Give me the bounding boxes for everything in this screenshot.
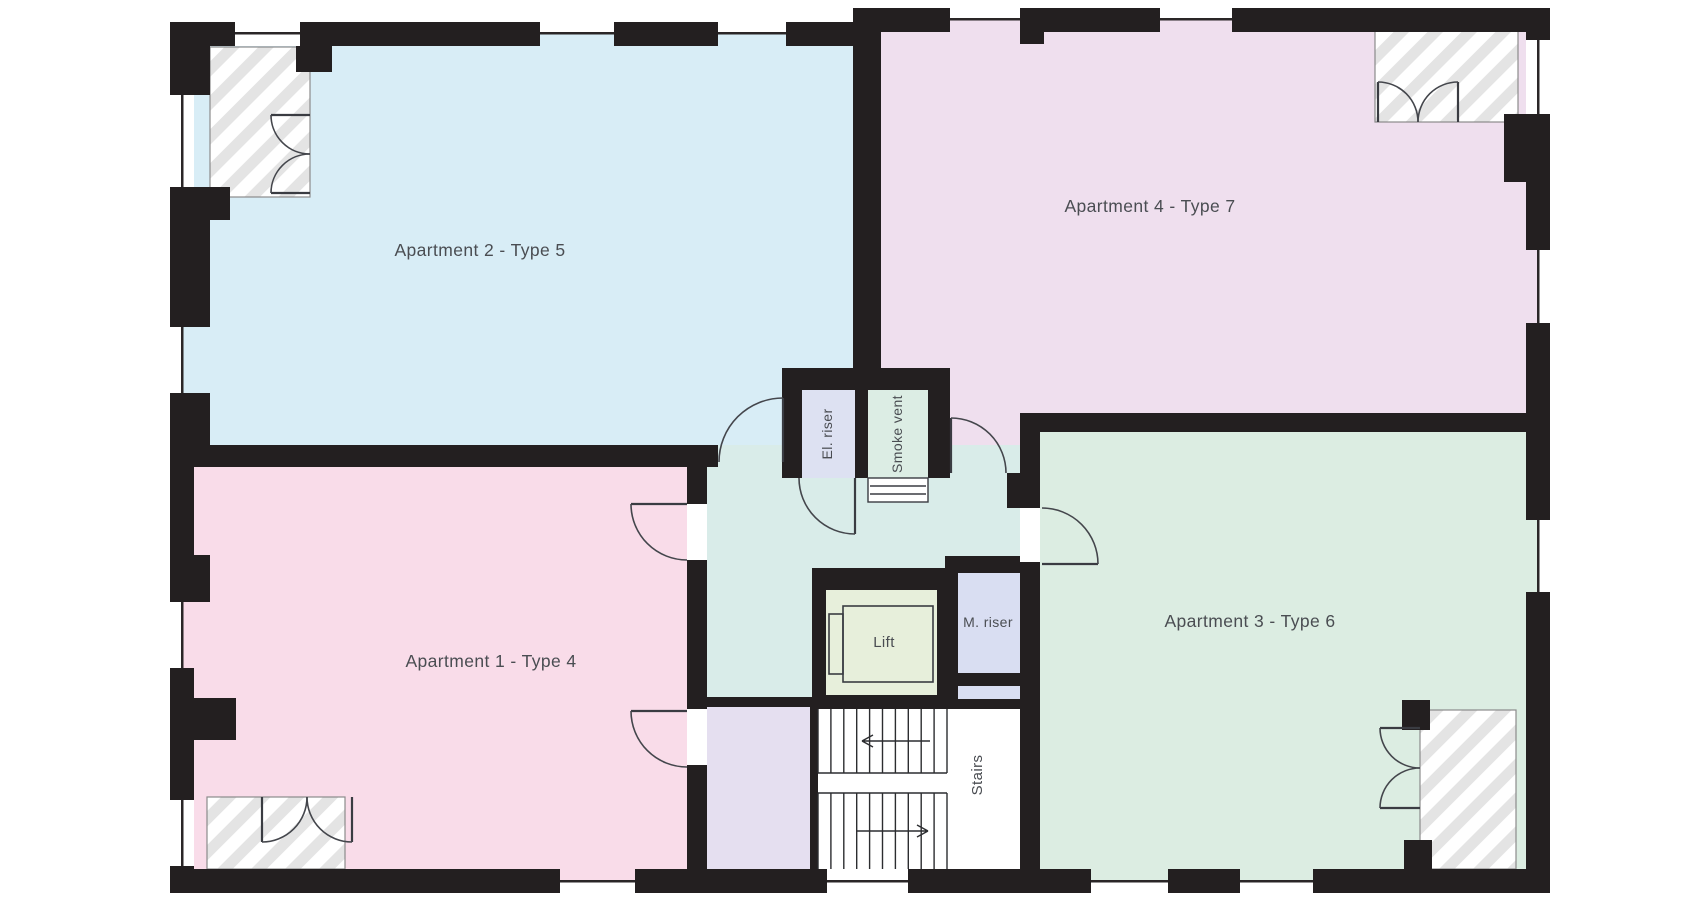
apartment-3-label: Apartment 3 - Type 6 — [1164, 611, 1335, 631]
smoke-vent-grille — [868, 478, 928, 502]
window — [1091, 869, 1168, 893]
wall-mriser-south — [958, 673, 1020, 686]
apartment-4-label: Apartment 4 - Type 7 — [1064, 196, 1235, 216]
wall-pier — [194, 220, 210, 327]
window — [1526, 40, 1550, 114]
window — [560, 869, 635, 893]
window — [1240, 869, 1313, 893]
wall-pier — [1402, 700, 1430, 730]
smoke-vent-label: Smoke vent — [889, 395, 905, 473]
window — [950, 8, 1020, 32]
m-riser-label: M. riser — [963, 614, 1013, 630]
wall-right — [1526, 8, 1550, 893]
stair-arrow-down — [856, 825, 928, 837]
wall-apt1-east-b — [687, 560, 707, 709]
wall-pier — [194, 46, 210, 95]
window — [1526, 520, 1550, 592]
m-riser-vent-slot — [958, 686, 1020, 699]
wall-lobby-stairs — [810, 707, 818, 869]
wall-apt1-east-a — [687, 445, 707, 504]
wall-pier — [194, 187, 230, 220]
lobby-area — [707, 707, 812, 869]
window — [170, 800, 194, 866]
window — [170, 95, 194, 187]
window — [170, 327, 194, 393]
wall-apt2-south — [170, 445, 718, 467]
wall-pier — [296, 22, 332, 72]
window — [170, 602, 194, 668]
window — [1160, 8, 1232, 32]
wall-core-east — [928, 368, 950, 478]
window — [718, 22, 786, 46]
el-riser-label: El. riser — [819, 408, 835, 459]
lift-label: Lift — [873, 634, 895, 651]
balcony-apartment-3 — [1420, 710, 1516, 869]
wall-lift-north — [812, 568, 950, 590]
stairs — [818, 709, 947, 869]
wall-pier — [1020, 8, 1044, 44]
wall-pier — [194, 393, 210, 445]
stairs-label: Stairs — [969, 755, 986, 796]
wall-core-mid — [855, 390, 868, 478]
wall-below-mriser — [945, 699, 1020, 709]
apartment-2-label: Apartment 2 - Type 5 — [394, 240, 565, 260]
wall-lobby-north — [707, 697, 818, 707]
wall-core-north — [782, 368, 950, 390]
wall-pier — [194, 555, 210, 602]
wall-pier — [194, 698, 236, 740]
window — [827, 869, 908, 893]
wall-apt1-east-c — [687, 765, 707, 869]
apartment-1-label: Apartment 1 - Type 4 — [405, 651, 576, 671]
wall-apt3-north — [1020, 413, 1526, 432]
wall-pier — [1404, 840, 1432, 869]
wall-mriser-west — [945, 556, 958, 709]
wall-core-west — [782, 368, 802, 478]
floor-plan-drawing: Apartment 2 - Type 5 Apartment 4 - Type … — [0, 0, 1700, 899]
wall-lift-west — [812, 568, 826, 707]
wall-apt2-apt4-divider — [853, 8, 881, 368]
wall-pier — [1504, 114, 1526, 182]
window — [1526, 250, 1550, 323]
window — [540, 22, 614, 46]
wall-apt3-west-b — [1020, 562, 1040, 869]
floor-plan-page: Apartment 2 - Type 5 Apartment 4 - Type … — [0, 0, 1700, 899]
window — [235, 22, 300, 46]
balcony-apartment-2 — [210, 47, 310, 197]
